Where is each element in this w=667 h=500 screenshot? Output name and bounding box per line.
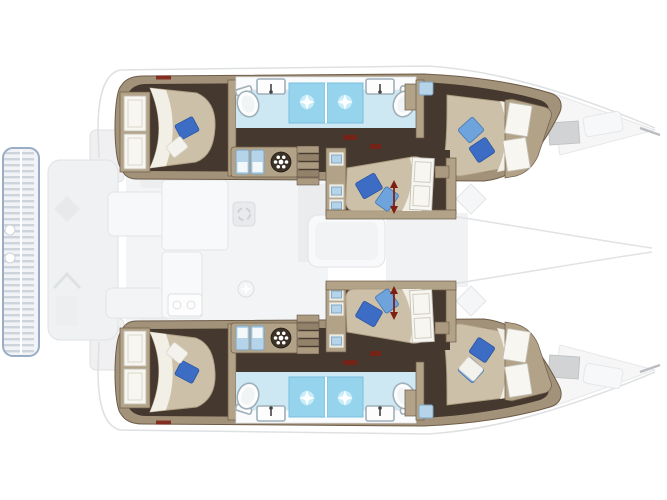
shelf-gear: [332, 187, 342, 195]
foredeck-line: [452, 216, 652, 248]
side-cabinet: [435, 166, 449, 178]
galley-appliance-icon: [233, 202, 255, 226]
foredeck-line: [452, 252, 652, 284]
wardrobe-door: [503, 137, 531, 171]
deck-diamond-hatch-icon: [456, 184, 486, 214]
galley-counter-ghost: [162, 180, 228, 250]
companionway-steps-icon: [297, 146, 319, 185]
shelf-gear: [332, 202, 342, 209]
wardrobe-door: [124, 96, 146, 131]
red-accent-mark: [343, 135, 357, 140]
wheel-hatch-icon: [271, 152, 291, 172]
cockpit-table-ghost: [108, 192, 166, 236]
red-accent-mark: [156, 76, 171, 80]
aft-swim-platform: [3, 148, 39, 356]
platform-fitting-icon: [5, 253, 15, 263]
platform-fitting-icon: [5, 225, 15, 235]
catamaran-floor-plan: [0, 0, 667, 500]
red-accent-mark: [370, 144, 381, 149]
cabin-door: [410, 157, 435, 210]
mid-cabin: [326, 144, 456, 219]
cockpit-bench-ghost: [106, 288, 166, 318]
shelf-gear: [332, 155, 342, 163]
floor-plan-svg: [0, 0, 667, 500]
wardrobe-door: [124, 134, 146, 169]
saloon-table-ghost: [308, 213, 468, 287]
forward-saloon-ghost: [386, 213, 468, 287]
deck-diamond-hatch-icon: [456, 286, 486, 316]
wardrobe-door: [505, 102, 533, 136]
cabin-sink-icon: [419, 82, 433, 95]
